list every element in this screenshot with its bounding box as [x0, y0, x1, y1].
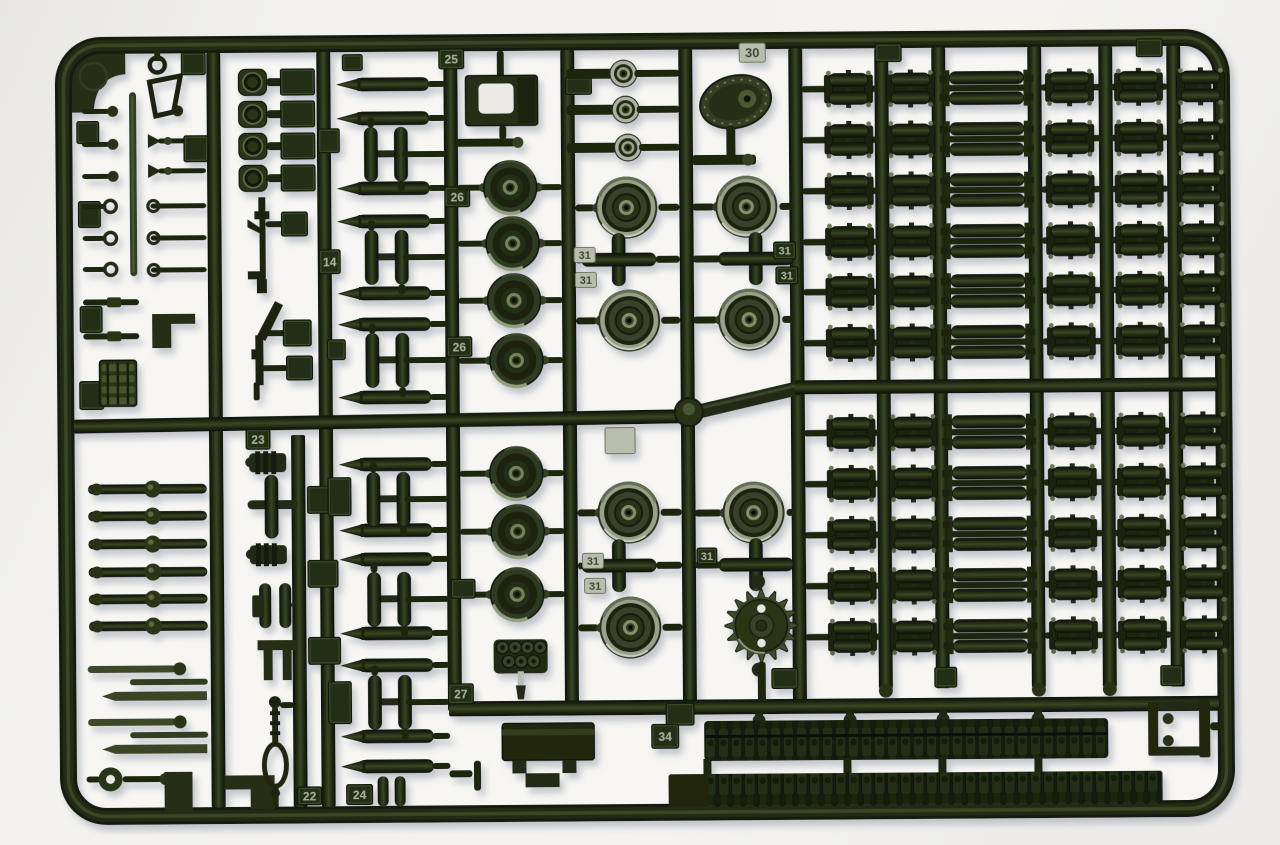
svg-text:30: 30 [745, 45, 760, 60]
svg-text:31: 31 [779, 245, 791, 257]
svg-text:24: 24 [353, 788, 367, 802]
svg-text:31: 31 [589, 581, 601, 593]
svg-text:31: 31 [580, 275, 592, 287]
svg-text:31: 31 [781, 270, 793, 282]
svg-text:23: 23 [251, 433, 265, 447]
svg-text:26: 26 [453, 340, 467, 354]
svg-text:31: 31 [701, 551, 713, 563]
svg-text:22: 22 [303, 789, 317, 803]
svg-text:34: 34 [658, 730, 672, 744]
svg-text:25: 25 [445, 52, 459, 66]
svg-text:26: 26 [451, 190, 465, 204]
svg-text:27: 27 [454, 687, 468, 701]
svg-text:14: 14 [323, 255, 337, 269]
svg-text:31: 31 [587, 556, 599, 568]
svg-text:31: 31 [579, 250, 591, 262]
